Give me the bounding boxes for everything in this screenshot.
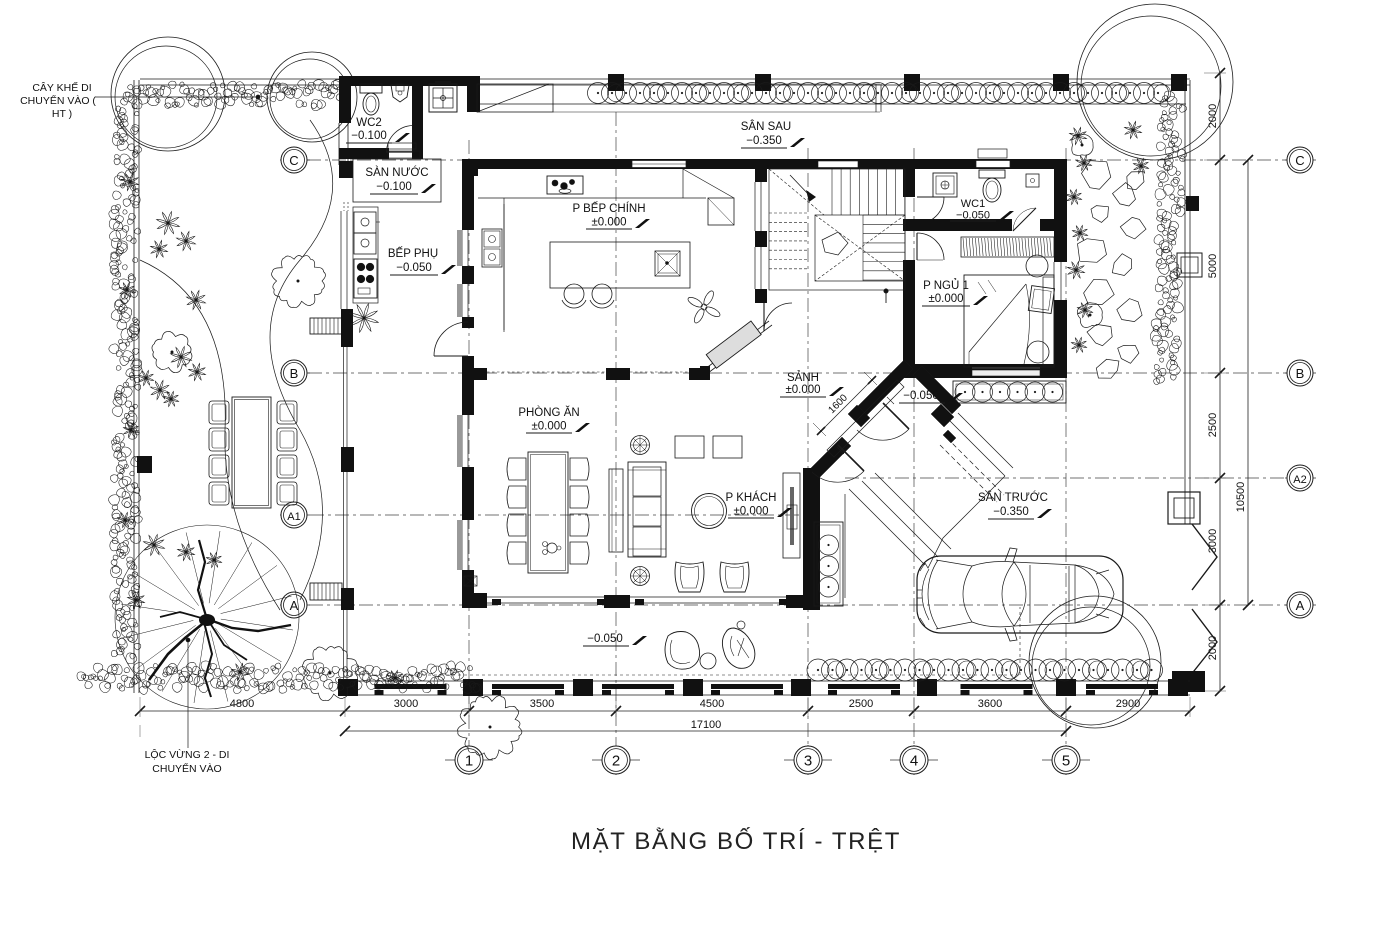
svg-text:CHUYỂN VÀO (: CHUYỂN VÀO ( (20, 94, 96, 107)
svg-text:PHÒNG ĂN: PHÒNG ĂN (518, 406, 579, 419)
svg-text:C: C (1295, 153, 1304, 168)
svg-text:4500: 4500 (700, 698, 724, 710)
svg-text:A: A (1296, 598, 1305, 613)
svg-text:±0.000: ±0.000 (928, 293, 963, 305)
svg-text:−0.050: −0.050 (956, 210, 990, 222)
svg-text:P NGỦ 1: P NGỦ 1 (923, 279, 969, 292)
svg-text:±0.000: ±0.000 (785, 384, 820, 396)
svg-text:2500: 2500 (1207, 413, 1219, 437)
svg-text:CHUYỂN VÀO: CHUYỂN VÀO (152, 762, 221, 775)
svg-text:SÀN NƯỚC: SÀN NƯỚC (365, 166, 428, 179)
svg-text:B: B (290, 366, 299, 381)
svg-text:−0.050: −0.050 (903, 390, 939, 402)
svg-text:±0.000: ±0.000 (591, 217, 626, 229)
svg-text:WC1: WC1 (961, 198, 985, 210)
svg-text:5000: 5000 (1207, 254, 1219, 278)
svg-text:1: 1 (465, 753, 473, 770)
svg-text:−0.050: −0.050 (587, 633, 623, 645)
svg-text:−0.350: −0.350 (746, 135, 782, 147)
svg-text:3: 3 (804, 753, 812, 770)
svg-text:−0.100: −0.100 (376, 181, 412, 193)
svg-text:SÂN SAU: SÂN SAU (741, 120, 792, 133)
svg-text:A1: A1 (287, 511, 300, 523)
svg-text:4: 4 (910, 753, 918, 770)
svg-text:C: C (289, 153, 298, 168)
svg-text:SẢNH: SẢNH (787, 371, 819, 384)
svg-text:3000: 3000 (394, 698, 418, 710)
svg-text:3000: 3000 (1207, 529, 1219, 553)
svg-text:10500: 10500 (1235, 482, 1247, 513)
svg-text:±0.000: ±0.000 (531, 421, 566, 433)
svg-text:LỘC VỪNG 2 - DI: LỘC VỪNG 2 - DI (145, 748, 230, 761)
svg-text:2000: 2000 (1207, 104, 1219, 128)
svg-text:2: 2 (612, 753, 620, 770)
svg-text:BẾP PHỤ: BẾP PHỤ (388, 247, 438, 260)
svg-text:−0.050: −0.050 (396, 262, 432, 274)
svg-text:P KHÁCH: P KHÁCH (726, 491, 777, 504)
svg-text:5: 5 (1062, 753, 1070, 770)
svg-text:3600: 3600 (978, 698, 1002, 710)
svg-text:2500: 2500 (849, 698, 873, 710)
svg-text:HT ): HT ) (52, 108, 72, 120)
svg-text:−0.100: −0.100 (351, 130, 387, 142)
svg-text:3500: 3500 (530, 698, 554, 710)
svg-text:SÂN TRƯỚC: SÂN TRƯỚC (978, 491, 1048, 504)
svg-text:B: B (1296, 366, 1305, 381)
svg-text:±0.000: ±0.000 (733, 506, 768, 518)
svg-text:4800: 4800 (230, 698, 254, 710)
svg-text:A2: A2 (1293, 474, 1306, 486)
svg-text:WC2: WC2 (356, 117, 382, 129)
svg-text:CÂY KHẾ DI: CÂY KHẾ DI (32, 81, 91, 94)
svg-text:P BẾP CHÍNH: P BẾP CHÍNH (572, 202, 645, 215)
svg-text:17100: 17100 (691, 719, 722, 731)
svg-text:−0.350: −0.350 (993, 506, 1029, 518)
svg-text:MẶT BẰNG BỐ TRÍ - TRỆT: MẶT BẰNG BỐ TRÍ - TRỆT (571, 827, 901, 855)
